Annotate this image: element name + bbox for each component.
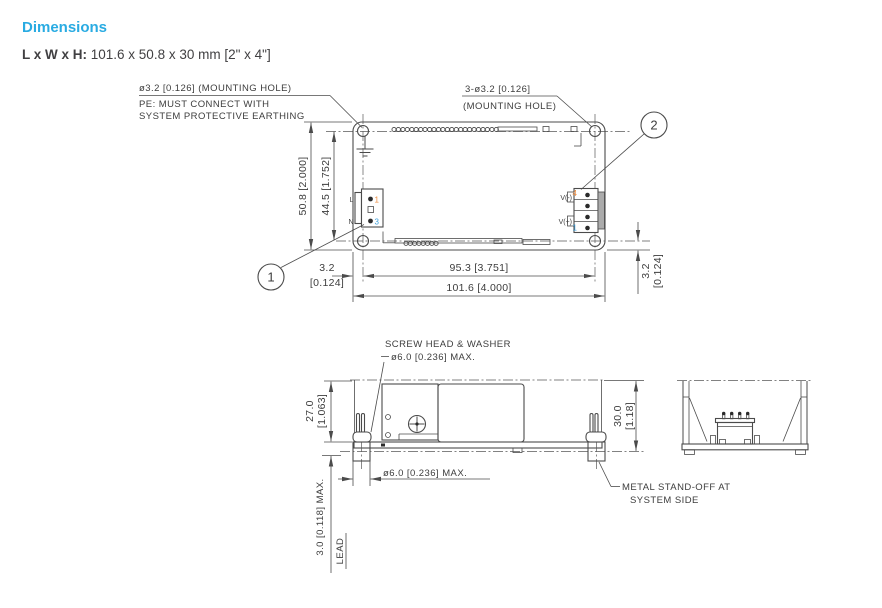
- balloon-2-number: 2: [650, 118, 657, 133]
- dim-offset-left-in: [0.124]: [310, 277, 344, 289]
- input-pin-number-1: 1: [375, 196, 380, 205]
- dim-standoff-dia-label: ø6.0 [0.236] MAX.: [383, 468, 467, 479]
- label-v-plus: V(+): [559, 219, 572, 226]
- output-pin-number-4: 4: [573, 189, 578, 198]
- callout-pe-text-1: PE: MUST CONNECT WITH: [139, 99, 270, 110]
- output-pin-4: [585, 193, 590, 198]
- module-body-outline: [353, 122, 605, 250]
- output-pin-number-1: 1: [573, 224, 578, 233]
- callout-hole-right-text-2: (MOUNTING HOLE): [463, 101, 556, 112]
- dim-offset-right-in: [0.124]: [652, 254, 664, 288]
- balloon-1-number: 1: [267, 270, 274, 285]
- dim-width-label: 101.6 [4.000]: [446, 282, 511, 294]
- dim-hole-height-label: 44.5 [1.752]: [320, 156, 332, 215]
- dim-standoff-diameter: ø6.0 [0.236] MAX.: [338, 462, 490, 487]
- dim-hole-width-95-3: 95.3 [3.751]: [364, 262, 595, 276]
- end-view-pcb: [682, 444, 808, 450]
- label-v-minus: V(-): [560, 195, 572, 202]
- end-view-transformer: [711, 412, 760, 444]
- side-view-drawing: SCREW HEAD & WASHER ø6.0 [0.236] MAX. 27…: [304, 339, 731, 573]
- dim-total-height-in: [1.18]: [624, 402, 636, 430]
- transformer-block: [438, 384, 524, 442]
- input-pin-3: [368, 219, 373, 224]
- screw-head-icon: [409, 416, 426, 433]
- callout-standoff-text-1: METAL STAND-OFF AT: [622, 482, 731, 493]
- callout-hole-left-text: ø3.2 [0.126] (MOUNTING HOLE): [139, 83, 292, 94]
- callout-mounting-hole-left: ø3.2 [0.126] (MOUNTING HOLE) PE: MUST CO…: [139, 83, 362, 128]
- dim-width-101-6: 101.6 [4.000]: [353, 252, 605, 302]
- dim-total-height-mm: 30.0: [612, 405, 624, 427]
- output-pin-2: [585, 215, 590, 220]
- input-connector: L N 1 3: [348, 189, 383, 227]
- balloon-callout-2: 2: [581, 112, 667, 190]
- technical-drawing: L N 1 3 V(-) 4 V(+) 1: [0, 0, 882, 608]
- lead-label: LEAD: [335, 538, 346, 565]
- dim-offset-left-mm: 3.2: [319, 262, 335, 274]
- dim-total-height-30: 30.0 [1.18]: [604, 381, 644, 451]
- top-view-drawing: L N 1 3 V(-) 4 V(+) 1: [139, 83, 667, 302]
- datasheet-dimensions-page: Dimensions L x W x H: 101.6 x 50.8 x 30 …: [0, 0, 882, 608]
- input-pin-1: [368, 197, 373, 202]
- dim-lead-length: 3.0 [0.118] MAX. LEAD: [315, 456, 346, 574]
- dim-offset-right-mm: 3.2: [640, 263, 652, 279]
- output-pin-1: [585, 226, 590, 231]
- input-pin-number-3: 3: [375, 218, 380, 227]
- standoff-left: [353, 414, 371, 471]
- dim-body-height-in: [1.063]: [316, 394, 328, 428]
- page-title: Dimensions: [22, 19, 107, 36]
- callout-screw-text-1: SCREW HEAD & WASHER: [385, 339, 511, 350]
- dim-body-height-mm: 27.0: [304, 400, 316, 422]
- end-view-drawing: [677, 381, 813, 455]
- size-value: 101.6 x 50.8 x 30 mm [2" x 4"]: [87, 47, 271, 62]
- dim-height-label: 50.8 [2.000]: [297, 156, 309, 215]
- earth-ground-icon: [357, 137, 374, 157]
- size-summary: L x W x H: 101.6 x 50.8 x 30 mm [2" x 4"…: [22, 47, 271, 62]
- callout-hole-right-text-1: 3-ø3.2 [0.126]: [465, 84, 530, 95]
- callout-standoff-text-2: SYSTEM SIDE: [630, 495, 699, 506]
- callout-mounting-hole-right: 3-ø3.2 [0.126] (MOUNTING HOLE): [462, 84, 592, 127]
- dim-body-height-27: 27.0 [1.063]: [304, 381, 352, 442]
- bottom-edge-components: [383, 232, 550, 246]
- callout-pe-text-2: SYSTEM PROTECTIVE EARTHING: [139, 111, 305, 122]
- output-connector: V(-) 4 V(+) 1: [559, 189, 605, 233]
- dim-hole-width-label: 95.3 [3.751]: [449, 262, 508, 274]
- top-edge-components: [392, 127, 581, 147]
- standoff-right: [586, 414, 606, 471]
- dim-offset-left-3-2: 3.2 [0.124]: [310, 262, 353, 289]
- callout-metal-standoff: METAL STAND-OFF AT SYSTEM SIDE: [599, 462, 731, 506]
- output-pin-3: [585, 204, 590, 209]
- callout-screw-text-2: ø6.0 [0.236] MAX.: [391, 352, 475, 363]
- label-line: L: [350, 197, 354, 204]
- dim-hole-height-44-5: 44.5 [1.752]: [320, 132, 334, 241]
- dim-lead-max-label: 3.0 [0.118] MAX.: [315, 478, 326, 555]
- callout-screw-head: SCREW HEAD & WASHER ø6.0 [0.236] MAX.: [371, 339, 511, 432]
- size-label: L x W x H:: [22, 47, 87, 62]
- dim-offset-right-3-2: 3.2 [0.124]: [607, 222, 664, 294]
- label-neutral: N: [348, 219, 353, 226]
- pcb-profile: [354, 442, 602, 448]
